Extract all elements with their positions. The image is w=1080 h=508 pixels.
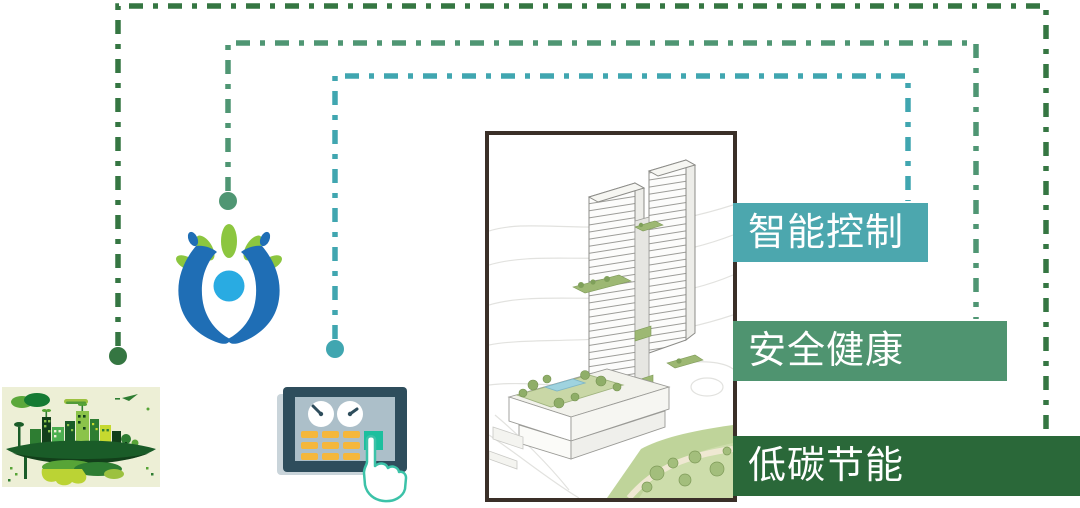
tower-rendering-image	[485, 131, 737, 502]
tower-back	[649, 160, 695, 353]
label-safety-health: 安全健康	[748, 332, 904, 370]
connector-dot-safety-health	[219, 192, 237, 210]
hands-care-icon	[160, 222, 298, 344]
control-panel-icon	[276, 385, 414, 503]
person-head	[214, 271, 245, 302]
label-smart-control: 智能控制	[748, 214, 904, 252]
label-low-carbon: 低碳节能	[748, 447, 904, 485]
label-bar-low-carbon: 低碳节能	[733, 436, 1080, 496]
eco-city-icon	[2, 387, 160, 487]
label-bar-smart-control: 智能控制	[733, 203, 928, 262]
tower-core	[635, 217, 649, 401]
site-ramps	[489, 427, 523, 469]
button-grid	[301, 431, 360, 460]
connector-dot-low-carbon	[109, 347, 127, 365]
slide-canvas: 智能控制 安全健康 低碳节能	[0, 0, 1080, 508]
connector-dot-smart-control	[326, 340, 344, 358]
label-bar-safety-health: 安全健康	[733, 321, 1007, 381]
